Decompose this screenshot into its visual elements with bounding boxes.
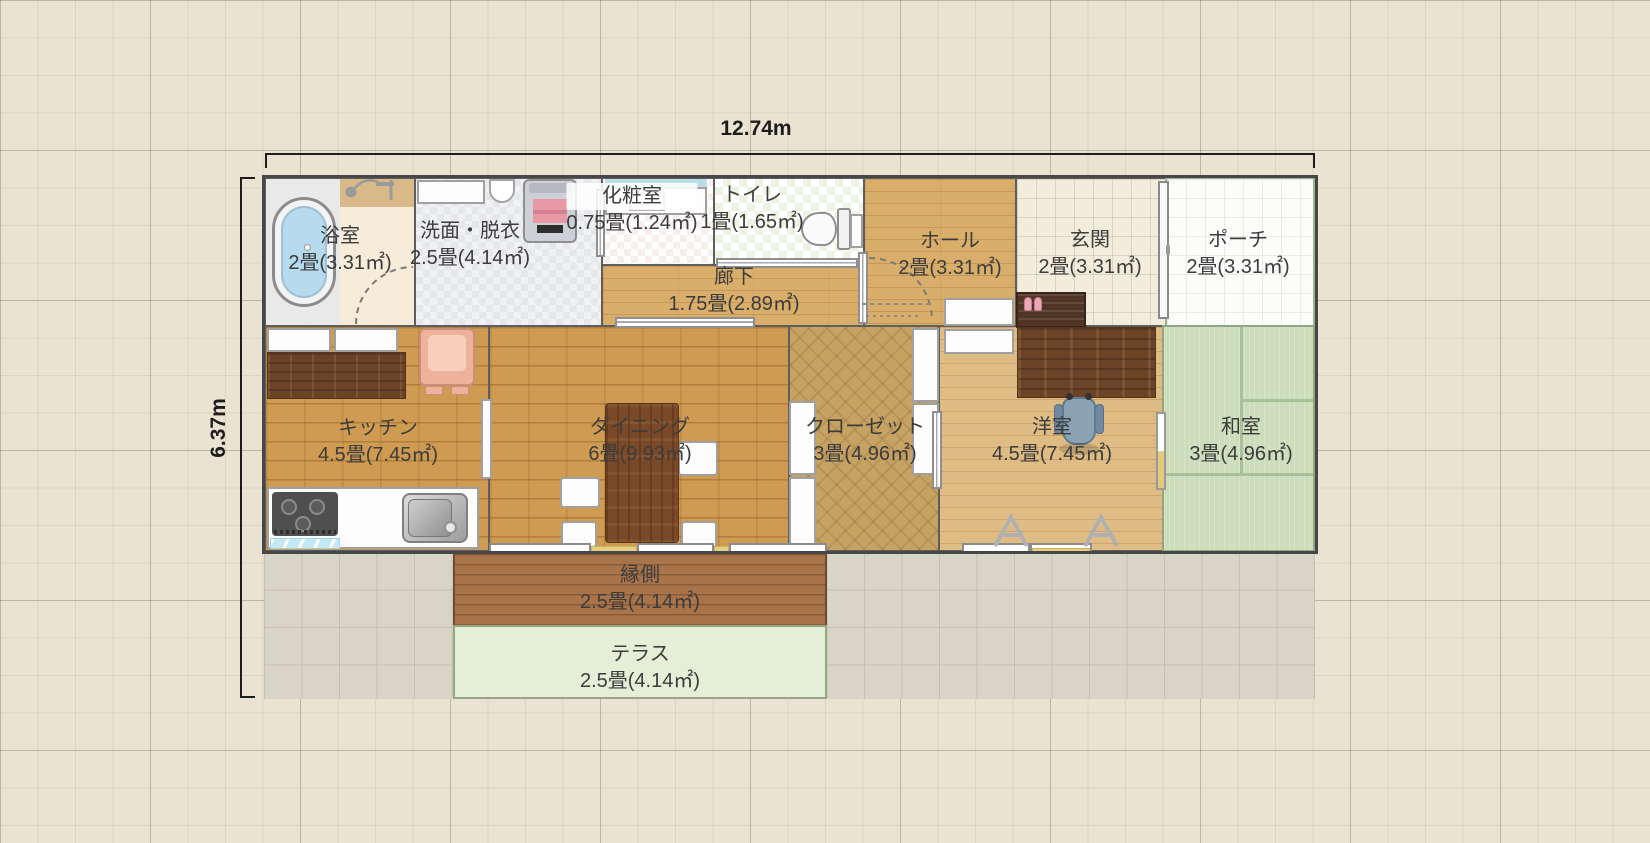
washer-top (529, 183, 571, 193)
room-label-kitchen: キッチン 4.5畳(7.45㎡) (318, 415, 438, 469)
dimension-line-horizontal (265, 153, 1315, 155)
kitchen-cabinet-icon[interactable] (334, 328, 398, 352)
room-size: 0.75畳(1.24㎡) (566, 210, 697, 237)
room-name: 化粧室 (566, 183, 697, 210)
room-name: 縁側 (580, 562, 700, 589)
window-sill-icon (714, 546, 729, 553)
dimension-width-label: 12.74m (720, 117, 791, 141)
armchair-cushion (427, 334, 467, 372)
sliding-door-icon[interactable] (858, 252, 868, 324)
dimension-line-vertical (240, 177, 242, 698)
room-size: 2畳(3.31㎡) (1038, 254, 1141, 281)
stove-mat-icon (270, 538, 340, 549)
stove-grate (274, 530, 336, 534)
room-label-toilet: トイレ 1畳(1.65㎡) (700, 182, 803, 236)
toilet-window (850, 214, 863, 248)
kitchen-cabinet-icon[interactable] (267, 328, 331, 352)
room-label-hall: ホール 2畳(3.31㎡) (898, 228, 1001, 282)
room-size: 1.75畳(2.89㎡) (668, 291, 799, 318)
room-name: 和室 (1189, 414, 1292, 441)
room-label-veranda: 縁側 2.5畳(4.14㎡) (580, 562, 700, 616)
room-name: 洗面・脱衣 (410, 218, 530, 245)
room-label-closet: クローゼット 3畳(4.96㎡) (805, 414, 925, 468)
kitchen-counter-icon[interactable] (267, 352, 406, 399)
room-label-japanese: 和室 3畳(4.96㎡) (1189, 414, 1292, 468)
room-size: 2.5畳(4.14㎡) (410, 245, 530, 272)
room-name: 玄関 (1038, 227, 1141, 254)
room-name: 廊下 (668, 264, 799, 291)
room-label-powder: 化粧室 0.75畳(1.24㎡) (566, 183, 697, 237)
room-name: 浴室 (288, 223, 391, 250)
vanity-icon[interactable] (417, 180, 485, 204)
room-name: トイレ (700, 182, 803, 209)
window-icon (962, 543, 1030, 554)
chair-icon[interactable] (560, 477, 600, 508)
room-size: 2畳(3.31㎡) (898, 255, 1001, 282)
room-label-bathroom: 浴室 2畳(3.31㎡) (288, 223, 391, 277)
tatami-mat-lines (1164, 473, 1313, 476)
sliding-door-icon[interactable] (1156, 412, 1166, 490)
room-size: 3畳(4.96㎡) (805, 441, 925, 468)
front-door-icon[interactable] (1158, 181, 1169, 319)
closet-panel-icon[interactable] (912, 328, 939, 402)
chair-knob (1085, 393, 1092, 400)
dimension-tick (265, 153, 267, 168)
dimension-tick (1313, 153, 1315, 168)
closet-panel-icon[interactable] (789, 477, 816, 549)
dimension-tick (240, 177, 255, 179)
room-size: 2.5畳(4.14㎡) (580, 668, 700, 695)
armchair-foot (425, 386, 443, 395)
room-name: 洋室 (992, 414, 1112, 441)
room-name: ホール (898, 228, 1001, 255)
storage-cabinet-icon[interactable] (944, 298, 1014, 326)
shower-panel (340, 179, 414, 207)
room-size: 3畳(4.96㎡) (1189, 441, 1292, 468)
room-size: 2畳(3.31㎡) (288, 250, 391, 277)
window-sill-icon (591, 546, 637, 553)
wall-opening (481, 399, 492, 479)
room-label-corridor: 廊下 1.75畳(2.89㎡) (668, 264, 799, 318)
room-label-terrace: テラス 2.5畳(4.14㎡) (580, 641, 700, 695)
room-name: クローゼット (805, 414, 925, 441)
washer-door-line (533, 210, 567, 214)
room-size: 4.5畳(7.45㎡) (318, 442, 438, 469)
room-name: ダイニング (588, 414, 691, 441)
room-name: テラス (580, 641, 700, 668)
room-label-entrance: 玄関 2畳(3.31㎡) (1038, 227, 1141, 281)
door-handle (1166, 245, 1170, 255)
burner (309, 499, 325, 515)
stove-icon[interactable] (272, 492, 338, 536)
sliding-door-icon[interactable] (932, 411, 942, 489)
burner (281, 499, 297, 515)
armchair-icon[interactable] (419, 328, 475, 386)
desk-icon[interactable] (1017, 327, 1156, 398)
slippers-icon (1034, 297, 1042, 311)
room-label-western: 洋室 4.5畳(7.45㎡) (992, 414, 1112, 468)
room-name: キッチン (318, 415, 438, 442)
kitchen-sink-icon[interactable] (402, 493, 468, 543)
window-icon (489, 543, 591, 554)
tatami-mat-lines (1240, 399, 1313, 402)
room-label-washroom: 洗面・脱衣 2.5畳(4.14㎡) (410, 218, 530, 272)
armchair-foot (451, 386, 469, 395)
toilet-tank (837, 208, 851, 250)
chair-knob (1066, 393, 1073, 400)
room-size: 6畳(9.93㎡) (588, 441, 691, 468)
room-size: 1畳(1.65㎡) (700, 209, 803, 236)
dimension-tick (240, 696, 255, 698)
room-size: 2畳(3.31㎡) (1186, 254, 1289, 281)
slippers-icon (1024, 297, 1032, 311)
room-label-porch: ポーチ 2畳(3.31㎡) (1186, 227, 1289, 281)
window-sill-icon (1032, 548, 1090, 553)
washer-slot (537, 225, 563, 233)
dimension-height-label: 6.37m (207, 398, 231, 458)
room-label-dining: ダイニング 6畳(9.93㎡) (588, 414, 691, 468)
sliding-door-icon[interactable] (615, 317, 755, 328)
room-size: 2.5畳(4.14㎡) (580, 589, 700, 616)
sink-faucet (444, 521, 457, 534)
dresser-icon[interactable] (944, 329, 1014, 354)
window-icon (637, 543, 714, 554)
room-size: 4.5畳(7.45㎡) (992, 441, 1112, 468)
window-icon (729, 543, 827, 554)
toilet-icon[interactable] (801, 212, 837, 246)
floorplan-canvas: 浴室 2畳(3.31㎡) 洗面・脱衣 2.5畳(4.14㎡) 化粧室 0.75畳… (0, 0, 1650, 843)
room-name: ポーチ (1186, 227, 1289, 254)
